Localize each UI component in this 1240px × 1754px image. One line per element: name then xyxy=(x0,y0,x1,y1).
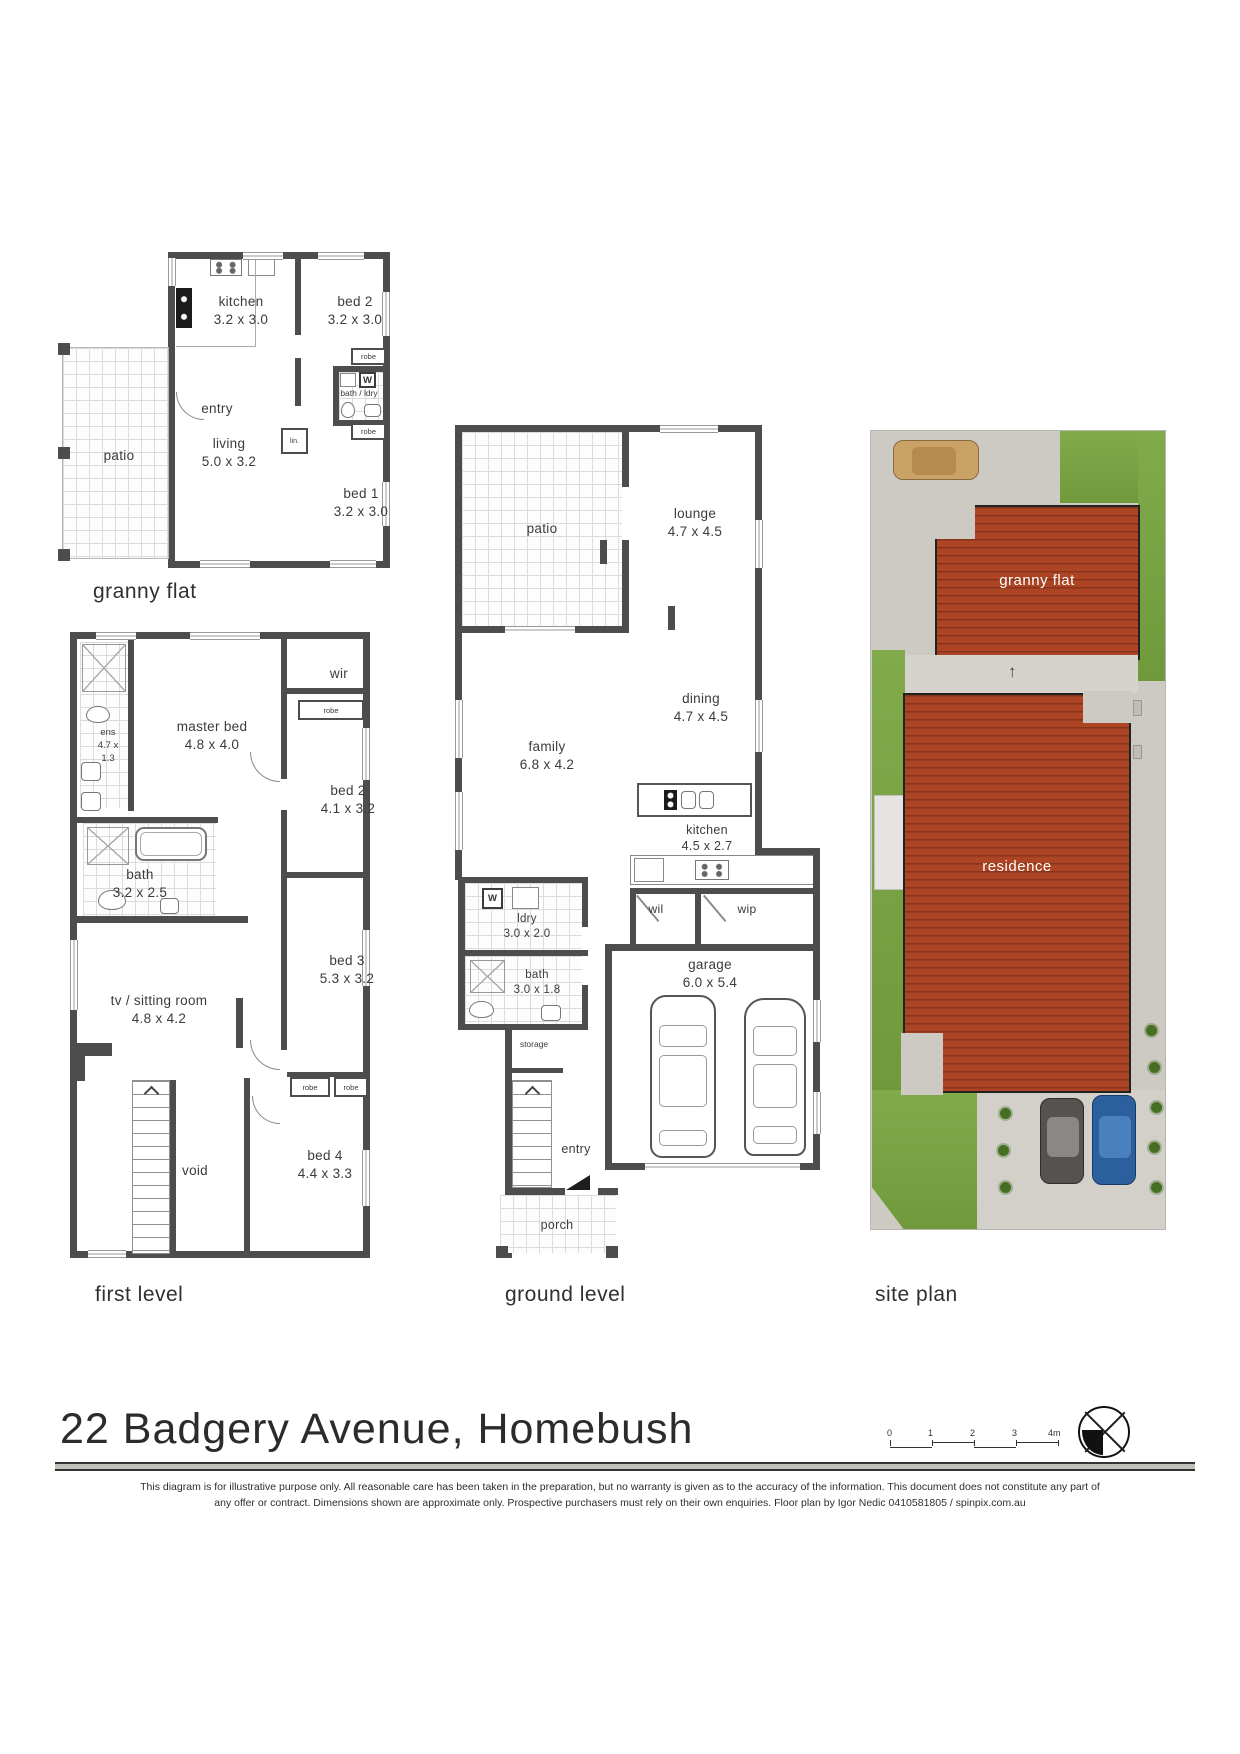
room-dims: 4.1 x 3.2 xyxy=(308,800,388,818)
window xyxy=(660,425,718,433)
room-name: kitchen xyxy=(667,822,747,838)
robe: robe xyxy=(351,348,386,365)
room-label-family: family 6.8 x 4.2 xyxy=(507,738,587,773)
room-dims: 3.0 x 2.0 xyxy=(487,927,567,942)
washing-machine-icon: W xyxy=(482,888,503,909)
room-label-garage: garage 6.0 x 5.4 xyxy=(650,956,770,991)
wall xyxy=(605,944,820,951)
laundry-tub-icon xyxy=(340,373,356,387)
room-label-entry: entry xyxy=(177,400,257,418)
utility-unit xyxy=(1133,745,1142,759)
room-name: kitchen xyxy=(201,293,281,311)
linen-cupboard: lin. xyxy=(281,428,308,454)
garage-door xyxy=(645,1163,800,1170)
vanity-icon xyxy=(541,1005,561,1021)
scale-tick xyxy=(932,1440,933,1446)
room-name: family xyxy=(507,738,587,756)
scale-tick-label: 3 xyxy=(1012,1428,1017,1438)
wall xyxy=(244,1078,250,1254)
room-dims: 4.5 x 2.7 xyxy=(667,838,747,854)
room-label-ldry: ldry 3.0 x 2.0 xyxy=(487,912,567,942)
room-name: patio xyxy=(79,447,159,465)
room-label-bath: bath 3.2 x 2.5 xyxy=(100,866,180,901)
shower-icon xyxy=(87,827,129,865)
room-name: patio xyxy=(502,520,582,538)
toilet-icon xyxy=(341,402,355,418)
wall xyxy=(668,606,675,630)
wall xyxy=(755,425,762,855)
room-label-bed1: bed 1 3.2 x 3.0 xyxy=(321,485,401,520)
room-label-tv-room: tv / sitting room 4.8 x 4.2 xyxy=(89,992,229,1027)
wall xyxy=(605,944,612,1170)
wall xyxy=(630,888,820,894)
window xyxy=(455,700,463,758)
wall xyxy=(695,894,701,950)
window xyxy=(168,258,176,286)
room-name: entry xyxy=(177,400,257,418)
room-dims: 3.2 x 3.0 xyxy=(315,311,395,329)
roof-notch xyxy=(933,503,975,539)
wall xyxy=(505,1188,565,1195)
entry-door-icon xyxy=(566,1175,590,1190)
window xyxy=(190,632,260,640)
scale-segment xyxy=(890,1442,932,1448)
wall xyxy=(755,848,820,855)
scale-tick-label: 2 xyxy=(970,1428,975,1438)
shrub-icon xyxy=(1149,1142,1160,1153)
plan-label-site-plan: site plan xyxy=(875,1283,958,1307)
room-label-bed4: bed 4 4.4 x 3.3 xyxy=(285,1147,365,1182)
room-dims: 1.3 xyxy=(88,753,128,766)
room-dims: 3.2 x 3.0 xyxy=(201,311,281,329)
wall xyxy=(295,259,301,335)
plan-label-ground-level: ground level xyxy=(505,1283,625,1307)
laundry-tub-icon xyxy=(512,887,539,909)
wall xyxy=(622,425,629,487)
room-label-living: living 5.0 x 3.2 xyxy=(189,435,269,470)
room-name: bed 3 xyxy=(307,952,387,970)
site-label-residence: residence xyxy=(947,858,1087,875)
room-name: garage xyxy=(650,956,770,974)
car-icon xyxy=(1092,1095,1136,1185)
kitchen-sink-icon xyxy=(664,790,677,810)
patio-post xyxy=(58,549,70,561)
room-name: bed 1 xyxy=(321,485,401,503)
robe: robe xyxy=(351,423,386,440)
divider-rule xyxy=(55,1462,1195,1471)
room-label-lounge: lounge 4.7 x 4.5 xyxy=(650,505,740,540)
room-label-bed2: bed 2 3.2 x 3.0 xyxy=(315,293,395,328)
car-icon xyxy=(893,440,979,480)
wall xyxy=(458,1024,588,1030)
wall xyxy=(505,1068,563,1073)
roof-notch xyxy=(1083,691,1133,723)
shrub-icon xyxy=(1151,1182,1162,1193)
patio-post xyxy=(58,343,70,355)
shrub-icon xyxy=(1000,1108,1011,1119)
robe: robe xyxy=(334,1077,368,1097)
plan-label-granny-flat: granny flat xyxy=(93,580,197,604)
room-label-kitchen: kitchen 4.5 x 2.7 xyxy=(667,822,747,855)
up-arrow-icon: ↑ xyxy=(1008,662,1017,682)
wall xyxy=(70,1043,85,1081)
disclaimer-line-1: This diagram is for illustrative purpose… xyxy=(70,1480,1170,1496)
room-label-void: void xyxy=(165,1162,225,1180)
car-icon xyxy=(1040,1098,1084,1184)
room-name: lounge xyxy=(650,505,740,523)
wall xyxy=(236,998,243,1048)
room-dims: 4.4 x 3.3 xyxy=(285,1165,365,1183)
car-icon xyxy=(650,995,716,1158)
room-dims: 6.8 x 4.2 xyxy=(507,756,587,774)
sink-bowl-icon xyxy=(681,791,696,809)
room-dims: 5.3 x 3.2 xyxy=(307,970,387,988)
scale-segment xyxy=(974,1442,1016,1448)
room-dims: 3.0 x 1.8 xyxy=(497,983,577,998)
porch-post xyxy=(606,1246,618,1258)
room-dims: 4.7 x xyxy=(88,740,128,753)
room-label-kitchen: kitchen 3.2 x 3.0 xyxy=(201,293,281,328)
room-label-wip: wip xyxy=(717,902,777,918)
room-label-wir: wir xyxy=(309,665,369,683)
wall xyxy=(581,877,588,927)
shrub-icon xyxy=(998,1145,1009,1156)
window xyxy=(330,560,376,568)
window xyxy=(813,1092,821,1134)
scale-segment xyxy=(1016,1442,1058,1448)
window xyxy=(200,560,250,568)
room-label-patio: patio xyxy=(79,447,159,465)
kitchen-sink-icon xyxy=(176,288,192,328)
compass-icon xyxy=(1078,1406,1130,1458)
window xyxy=(318,252,364,260)
room-name: living xyxy=(189,435,269,453)
window xyxy=(755,520,763,568)
robe: robe xyxy=(290,1077,330,1097)
wall xyxy=(622,540,629,632)
sliding-door xyxy=(505,626,575,633)
bathtub-icon xyxy=(135,827,207,861)
room-dims: 4.7 x 4.5 xyxy=(661,708,741,726)
shrub-icon xyxy=(1151,1102,1162,1113)
wall xyxy=(281,810,287,1050)
toilet-icon xyxy=(86,706,110,723)
window xyxy=(813,1000,821,1042)
window xyxy=(362,728,370,780)
window xyxy=(70,940,78,1010)
wall xyxy=(128,639,134,811)
room-label-bath: bath 3.0 x 1.8 xyxy=(497,968,577,998)
room-label-patio: patio xyxy=(502,520,582,538)
room-name: bath xyxy=(497,968,577,983)
room-label-bed2: bed 2 4.1 x 3.2 xyxy=(308,782,388,817)
wall xyxy=(598,1188,618,1195)
room-name: bed 4 xyxy=(285,1147,365,1165)
wall xyxy=(287,872,370,878)
plan-label-first-level: first level xyxy=(95,1283,183,1307)
wall xyxy=(630,888,636,950)
room-label-ens: ens 4.7 x 1.3 xyxy=(88,727,128,765)
window xyxy=(243,252,283,260)
room-label-entry: entry xyxy=(546,1141,606,1157)
room-name: master bed xyxy=(170,718,254,736)
fridge-space xyxy=(634,858,664,882)
disclaimer-line-2: any offer or contract. Dimensions shown … xyxy=(70,1496,1170,1512)
robe: robe xyxy=(298,700,364,720)
basin-icon xyxy=(81,792,101,811)
washing-machine-icon: W xyxy=(359,372,376,388)
shower-icon xyxy=(82,644,126,692)
room-label-wil: wil xyxy=(626,902,686,918)
room-name: porch xyxy=(517,1217,597,1233)
bench-edge xyxy=(176,346,256,347)
page-title: 22 Badgery Avenue, Homebush xyxy=(60,1405,693,1454)
wall xyxy=(455,425,630,432)
stove-icon xyxy=(695,860,729,880)
scale-tick-label: 1 xyxy=(928,1428,933,1438)
scale-tick xyxy=(890,1440,891,1446)
room-name: bed 2 xyxy=(308,782,388,800)
shrub-icon xyxy=(1000,1182,1011,1193)
wall xyxy=(295,358,301,406)
room-dims: 4.7 x 4.5 xyxy=(650,523,740,541)
utility-unit xyxy=(1133,700,1142,716)
room-label-dining: dining 4.7 x 4.5 xyxy=(661,690,741,725)
wall xyxy=(281,639,287,779)
room-label-master-bed: master bed 4.8 x 4.0 xyxy=(170,718,254,753)
window xyxy=(455,792,463,850)
toilet-icon xyxy=(469,1001,494,1018)
wall xyxy=(287,688,370,694)
disclaimer: This diagram is for illustrative purpose… xyxy=(70,1480,1170,1512)
path xyxy=(905,655,1138,693)
room-name: dining xyxy=(661,690,741,708)
room-name: tv / sitting room xyxy=(89,992,229,1010)
lawn xyxy=(1138,431,1165,681)
car-icon xyxy=(744,998,806,1156)
room-label-bath-ldry: bath / ldry xyxy=(328,389,390,398)
wall xyxy=(455,425,462,632)
room-label-storage: storage xyxy=(494,1040,574,1049)
wall xyxy=(600,540,607,564)
stove-icon xyxy=(210,259,242,276)
room-dims: 6.0 x 5.4 xyxy=(650,974,770,992)
room-label-bed3: bed 3 5.3 x 3.2 xyxy=(307,952,387,987)
room-name: ldry xyxy=(487,912,567,927)
scale-tick xyxy=(1058,1440,1059,1446)
porch-post xyxy=(496,1246,508,1258)
shrub-icon xyxy=(1146,1025,1157,1036)
site-label-granny-flat: granny flat xyxy=(967,572,1107,589)
room-name: bath xyxy=(100,866,180,884)
room-dims: 4.8 x 4.0 xyxy=(170,736,254,754)
sink-bowl-icon xyxy=(699,791,714,809)
room-dims: 3.2 x 3.0 xyxy=(321,503,401,521)
kitchen-cabinet xyxy=(248,259,275,276)
scale-tick xyxy=(974,1440,975,1446)
wall xyxy=(76,916,248,923)
room-dims: 3.2 x 2.5 xyxy=(100,884,180,902)
room-label-porch: porch xyxy=(517,1217,597,1233)
floorplan-page: W robe robe lin. kitchen 3.2 x 3.0 bed 2… xyxy=(0,0,1240,1754)
window xyxy=(755,700,763,752)
basin-icon xyxy=(364,404,381,417)
paved-slab xyxy=(874,795,904,890)
room-name: ens xyxy=(88,727,128,740)
roof-notch xyxy=(901,1033,943,1095)
room-name: bed 2 xyxy=(315,293,395,311)
scale-tick-label: 0 xyxy=(887,1428,892,1438)
scale-tick xyxy=(1016,1440,1017,1446)
window xyxy=(88,1250,126,1258)
room-dims: 4.8 x 4.2 xyxy=(89,1010,229,1028)
patio-post xyxy=(58,447,70,459)
room-dims: 5.0 x 3.2 xyxy=(189,453,269,471)
window xyxy=(96,632,136,640)
scale-tick-label: 4m xyxy=(1048,1428,1061,1438)
scale-segment xyxy=(932,1442,974,1448)
shrub-icon xyxy=(1149,1062,1160,1073)
